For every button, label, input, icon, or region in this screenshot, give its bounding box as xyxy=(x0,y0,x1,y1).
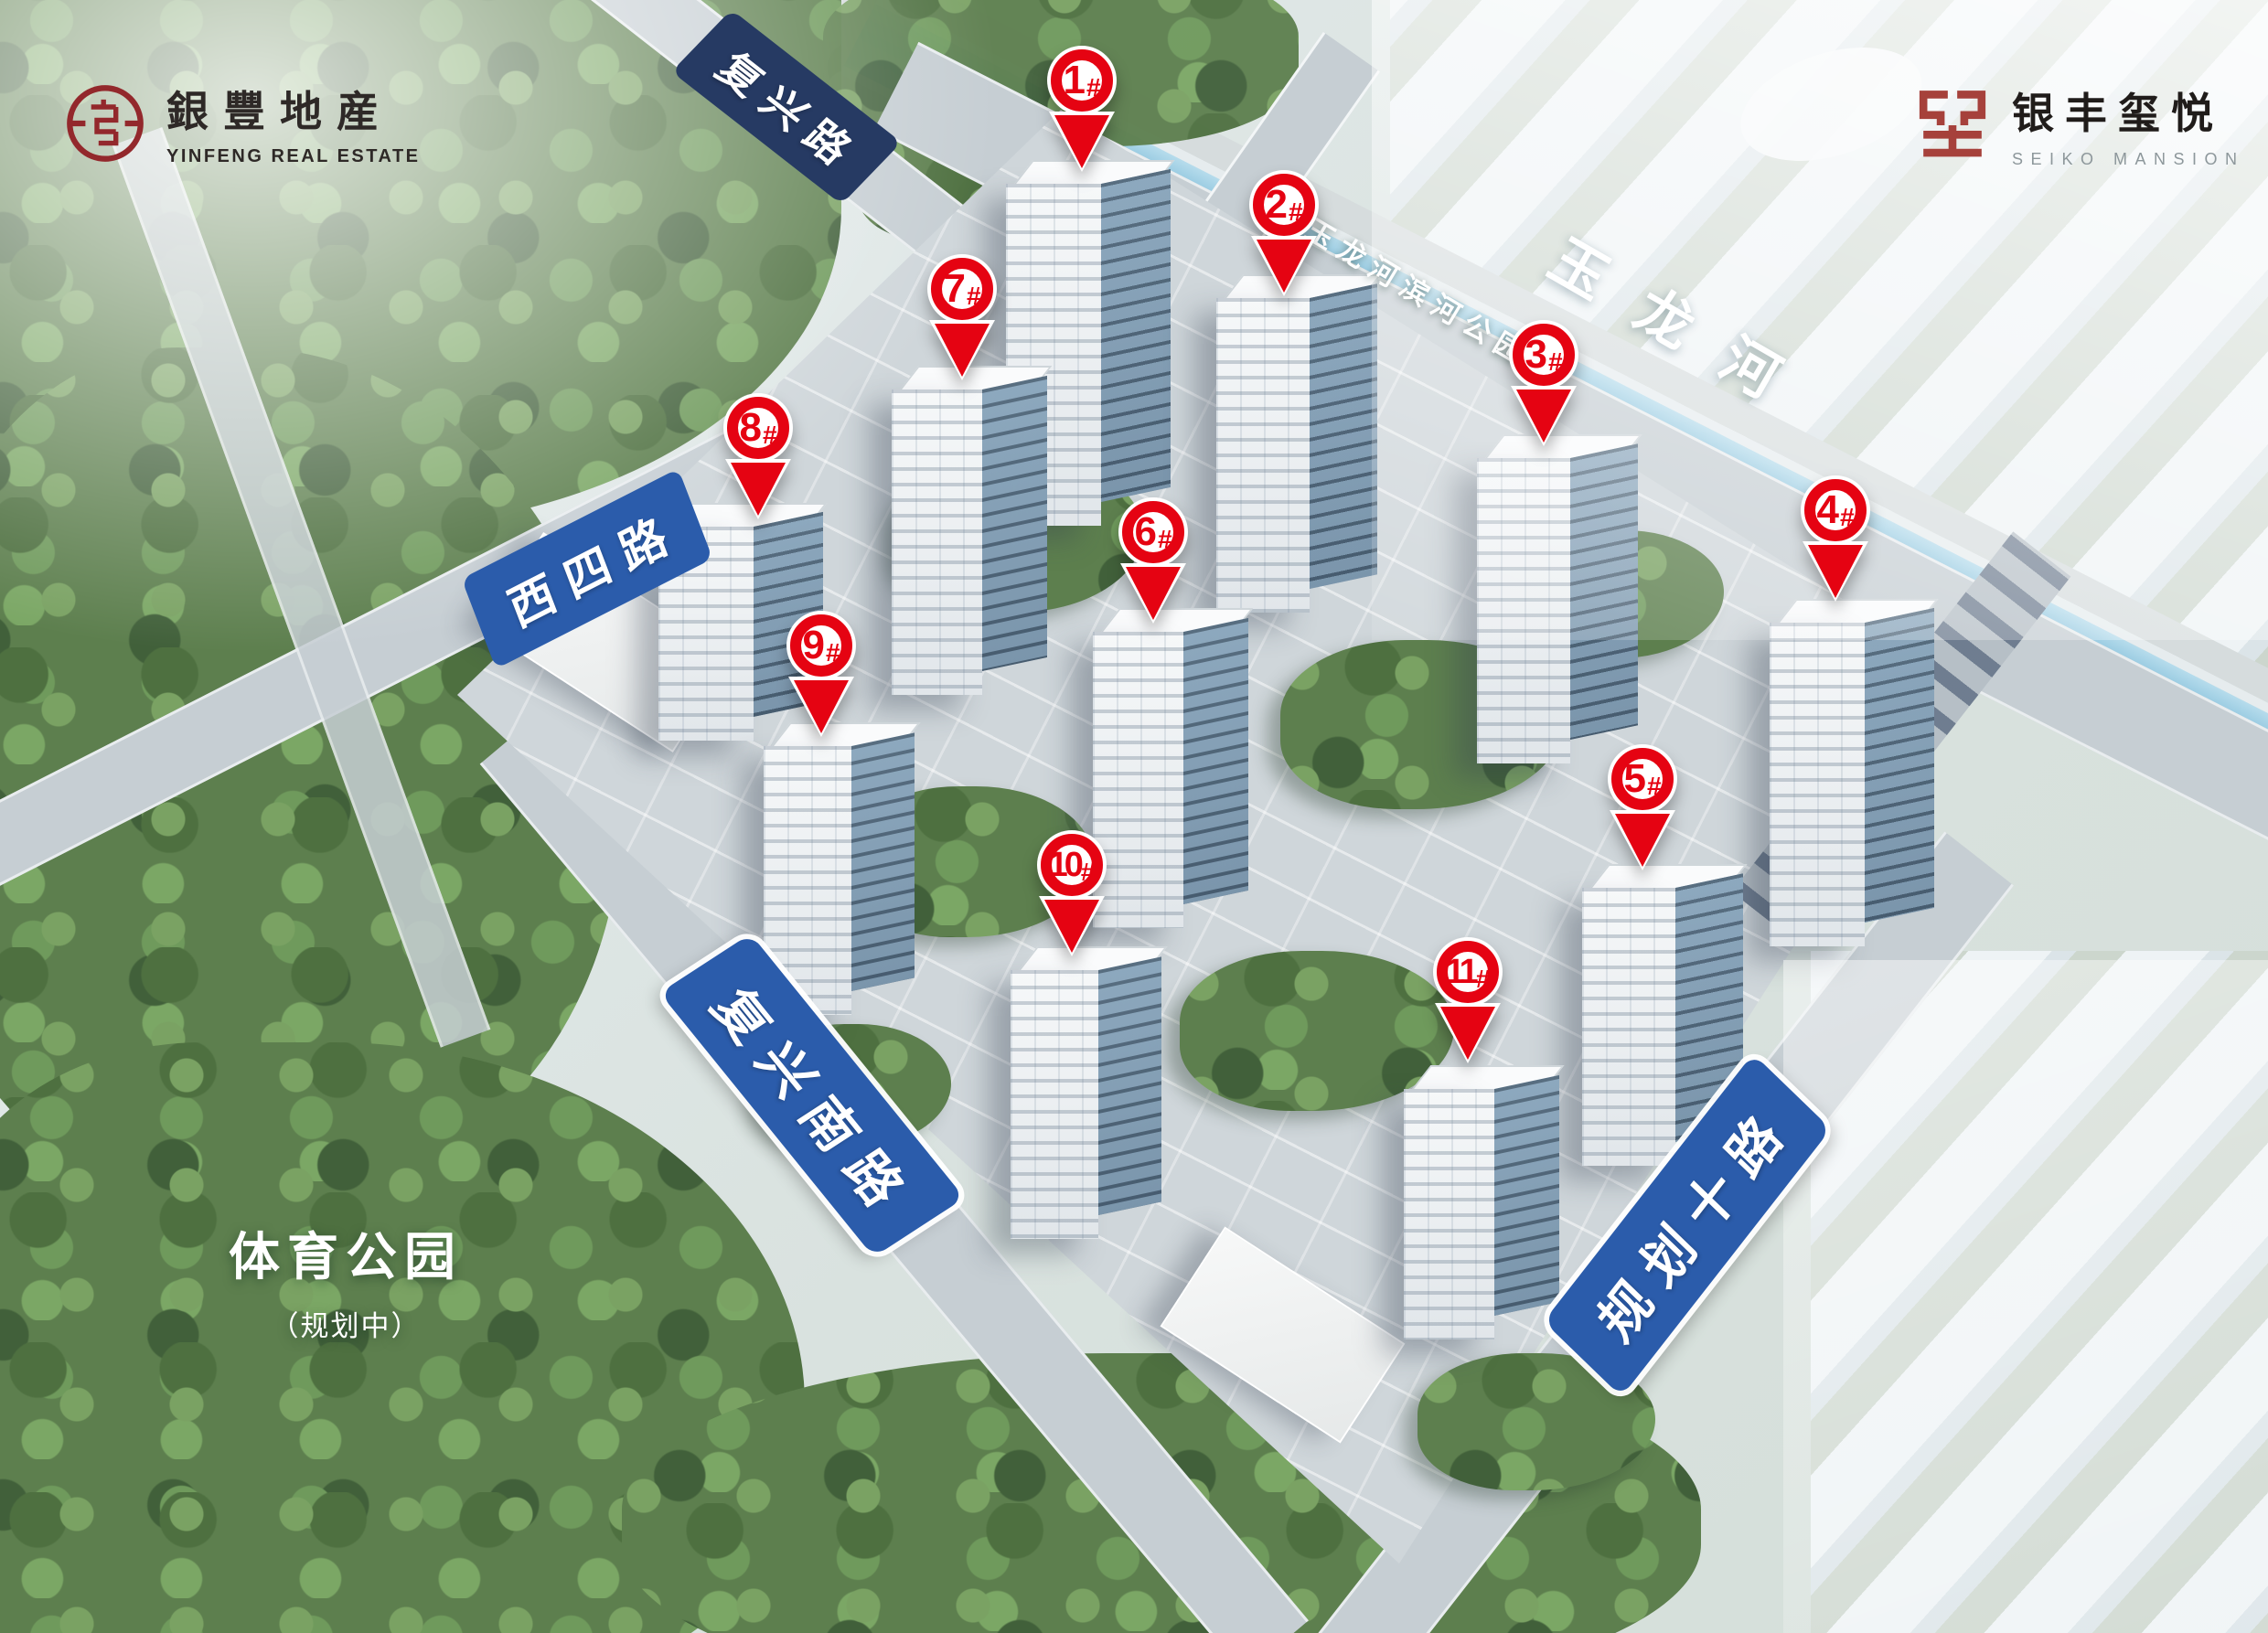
marker-number: 1 xyxy=(1063,60,1085,101)
marker-hash: # xyxy=(763,421,777,450)
sports-park-status: （规划中） xyxy=(229,1303,463,1344)
marker-number: 10 xyxy=(1049,848,1080,882)
yinfeng-seal-icon xyxy=(64,82,146,165)
building-tower xyxy=(1770,599,1934,946)
marker-pointer-icon xyxy=(1044,900,1099,953)
marker-number: 4 xyxy=(1816,490,1838,530)
developer-name-en: YINFENG REAL ESTATE xyxy=(166,146,421,167)
building-tower xyxy=(1093,608,1248,928)
developer-logo: 銀豐地産 YINFENG REAL ESTATE xyxy=(64,79,421,167)
marker-pointer-icon xyxy=(1440,1007,1495,1060)
marker-circle: 3 # xyxy=(1513,324,1575,386)
marker-circle: 2 # xyxy=(1253,174,1315,236)
sports-park-title: 体育公园 xyxy=(229,1216,463,1290)
marker-circle: 7 # xyxy=(931,258,993,320)
seal-mark-icon xyxy=(1913,86,1992,165)
marker-number: 2 xyxy=(1265,185,1287,225)
marker-circle: 8 # xyxy=(727,397,789,459)
marker-hash: # xyxy=(967,282,981,311)
marker-hash: # xyxy=(1548,347,1563,377)
marker-pointer-icon xyxy=(1808,545,1863,598)
marker-circle: 6 # xyxy=(1122,501,1184,563)
marker-number: 9 xyxy=(802,625,824,666)
site-plan-rendering: 玉龙河 玉龙河滨河公园 体育公园 （规划中） 复兴路 西四路 复兴南路 规划十路 xyxy=(0,0,2268,1633)
building-tower xyxy=(892,366,1047,695)
building-tower xyxy=(1216,274,1376,613)
marker-pointer-icon xyxy=(1257,240,1311,293)
project-name-cn: 银丰玺悦 xyxy=(2012,80,2245,141)
marker-number: 6 xyxy=(1134,512,1156,552)
marker-hash: # xyxy=(1647,772,1662,801)
marker-number: 7 xyxy=(943,269,965,309)
marker-circle: 4 # xyxy=(1804,479,1867,541)
project-name-en: SEIKO MANSION xyxy=(2012,150,2245,169)
marker-hash: # xyxy=(826,638,840,667)
marker-hash: # xyxy=(1081,858,1096,887)
marker-number: 8 xyxy=(739,408,761,448)
marker-circle: 9 # xyxy=(790,614,852,677)
marker-number: 5 xyxy=(1623,759,1645,799)
developer-name-cn: 銀豐地産 xyxy=(166,79,421,139)
marker-hash: # xyxy=(1476,965,1491,994)
marker-hash: # xyxy=(1158,525,1172,554)
sports-park-label: 体育公园 （规划中） xyxy=(229,1216,463,1344)
marker-hash: # xyxy=(1086,73,1101,102)
marker-pointer-icon xyxy=(935,324,990,377)
marker-circle: 1 # xyxy=(1051,49,1113,112)
marker-number: 11 xyxy=(1446,955,1475,989)
marker-pointer-icon xyxy=(1615,814,1670,867)
marker-circle: 10 # xyxy=(1041,834,1103,896)
marker-circle: 11 # xyxy=(1437,941,1499,1003)
marker-pointer-icon xyxy=(731,463,786,516)
marker-pointer-icon xyxy=(1516,390,1571,443)
marker-number: 3 xyxy=(1524,335,1546,375)
building-tower xyxy=(764,722,915,1015)
marker-circle: 5 # xyxy=(1611,748,1674,810)
marker-hash: # xyxy=(1289,197,1303,227)
project-logo: 银丰玺悦 SEIKO MANSION xyxy=(1913,80,2245,169)
marker-pointer-icon xyxy=(1126,567,1181,620)
marker-pointer-icon xyxy=(1054,115,1109,168)
building-tower xyxy=(1477,434,1637,763)
building-tower xyxy=(1404,1065,1559,1339)
marker-hash: # xyxy=(1840,503,1855,532)
marker-pointer-icon xyxy=(794,680,849,733)
building-tower xyxy=(1011,946,1161,1239)
